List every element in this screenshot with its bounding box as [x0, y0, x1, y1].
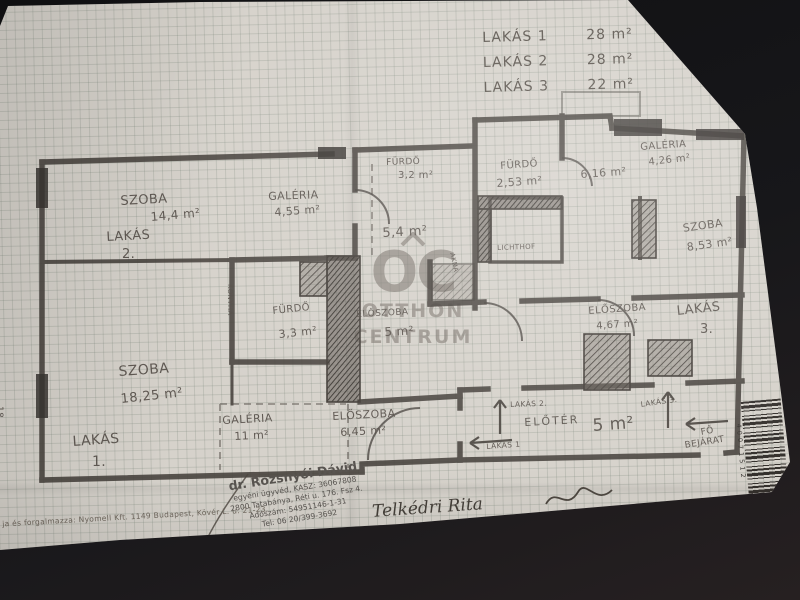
room-number-lakas2: 2. — [122, 247, 135, 262]
legend-row: LAKÁS 128 m² — [482, 26, 633, 46]
room-area-eloszoba-kozep: 5 m² — [384, 323, 414, 339]
door-label-lakas2: LAKÁS 2. — [510, 399, 547, 409]
room-number-lakas3: 3. — [700, 322, 713, 337]
room-label-lichthof: LICHTHOF — [497, 243, 536, 252]
room-label-konyha: KONYHA — [226, 284, 234, 316]
room-label-szoba-lakas2: SZOBA — [120, 192, 168, 209]
legend-lakas3-name: LAKÁS 3 — [483, 78, 563, 96]
legend-lakas2-name: LAKÁS 2 — [483, 53, 563, 71]
room-label-lakas2: LAKÁS — [106, 228, 151, 245]
arrow-up-lakas2-icon — [494, 400, 506, 434]
photo-background: OC OTTHON CENTRUM — [0, 0, 800, 600]
room-area-furdo-lakas2: 3,2 m² — [398, 170, 433, 181]
edge-note: 18 — [0, 406, 4, 418]
legend-lakas3-area: 22 m² — [587, 76, 634, 93]
barcode: 40071512 — [719, 398, 789, 503]
room-label-furdo-lakas2: FÜRDŐ — [386, 157, 420, 168]
area-legend: LAKÁS 128 m² LAKÁS 228 m² LAKÁS 322 m² — [482, 26, 634, 105]
signature-underline — [366, 523, 495, 532]
room-number-lakas1: 1. — [92, 454, 106, 470]
legend-lakas1-area: 28 m² — [586, 26, 633, 43]
second-signature-squiggle — [546, 488, 612, 504]
legend-row: LAKÁS 228 m² — [483, 51, 634, 71]
chimney-block — [327, 256, 360, 402]
room-label-galeria-lakas2: GALÉRIA — [268, 188, 319, 203]
room-area-eloter: 5 m² — [592, 413, 634, 436]
legend-row: LAKÁS 322 m² — [483, 76, 634, 96]
legend-lakas2-area: 28 m² — [587, 51, 634, 68]
room-label-lakas1: LAKÁS — [72, 431, 120, 450]
paper-sheet: OC OTTHON CENTRUM — [0, 0, 800, 600]
room-label-galeria-lakas1: GALÉRIA — [222, 411, 273, 427]
area-label-kozep: 5,4 m² — [382, 224, 428, 241]
room-area-galeria-lakas1: 11 m² — [234, 428, 269, 443]
walls — [42, 92, 744, 480]
room-area-eloszoba-lakas1: 6,45 m² — [340, 424, 387, 439]
legend-lakas1-name: LAKÁS 1 — [482, 28, 562, 46]
